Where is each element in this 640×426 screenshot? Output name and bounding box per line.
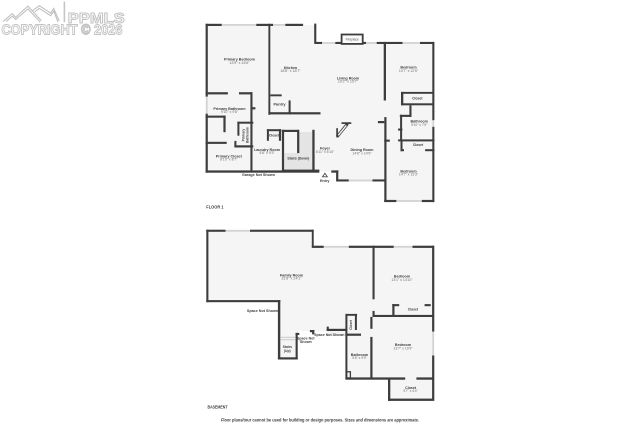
svg-text:31'8" x 24'1": 31'8" x 24'1" [281, 277, 302, 281]
svg-text:Entry: Entry [320, 179, 330, 183]
svg-text:5'8" x 9'9": 5'8" x 9'9" [352, 356, 367, 360]
svg-text:5'8" x 9'3": 5'8" x 9'3" [259, 151, 275, 155]
svg-text:Garage Not Shown: Garage Not Shown [242, 173, 276, 177]
svg-text:13'9" x 16'6": 13'9" x 16'6" [229, 61, 250, 65]
svg-text:Space Not Shown: Space Not Shown [314, 333, 344, 337]
svg-text:18'8" x 18'7": 18'8" x 18'7" [280, 69, 301, 73]
svg-text:Closet: Closet [349, 319, 353, 330]
svg-text:Closet: Closet [408, 307, 419, 311]
svg-text:6'11" x 8'10": 6'11" x 8'10" [316, 150, 335, 154]
svg-text:Closet: Closet [269, 133, 280, 137]
svg-text:Fireplace: Fireplace [346, 38, 359, 42]
svg-text:Space Not Shown: Space Not Shown [247, 309, 279, 313]
svg-text:Bathroom: Bathroom [246, 127, 250, 143]
svg-text:COPYRIGHT © 2026: COPYRIGHT © 2026 [2, 22, 123, 38]
svg-text:Stairs (Down): Stairs (Down) [287, 156, 309, 160]
svg-text:19'2" x 15'7": 19'2" x 15'7" [338, 80, 359, 84]
svg-text:8'10" x 8'7": 8'10" x 8'7" [220, 158, 238, 162]
svg-text:13'7" x 19'9": 13'7" x 19'9" [393, 346, 413, 350]
svg-text:Closet: Closet [412, 96, 423, 100]
svg-text:14'6" x 14'9": 14'6" x 14'9" [352, 151, 372, 155]
svg-text:Floor plans/tour cannot be use: Floor plans/tour cannot be used for buil… [221, 418, 419, 423]
svg-text:BASEMENT: BASEMENT [208, 405, 228, 410]
svg-text:9'10" x 9'8": 9'10" x 9'8" [221, 110, 239, 114]
svg-text:Pantry: Pantry [273, 102, 286, 107]
svg-text:9'10" x 7'9": 9'10" x 7'9" [411, 123, 428, 127]
svg-text:14'7" x 13'3": 14'7" x 13'3" [399, 173, 419, 177]
svg-text:Shown: Shown [300, 340, 312, 344]
svg-text:9'7" x 4'4": 9'7" x 4'4" [403, 389, 418, 393]
svg-text:10'7" x 12'5": 10'7" x 12'5" [399, 69, 419, 73]
svg-text:13'1" x 14'10": 13'1" x 14'10" [391, 278, 413, 282]
svg-text:Closet: Closet [413, 143, 424, 147]
svg-text:FLOOR 1: FLOOR 1 [206, 205, 224, 210]
svg-text:(Up): (Up) [284, 349, 291, 353]
